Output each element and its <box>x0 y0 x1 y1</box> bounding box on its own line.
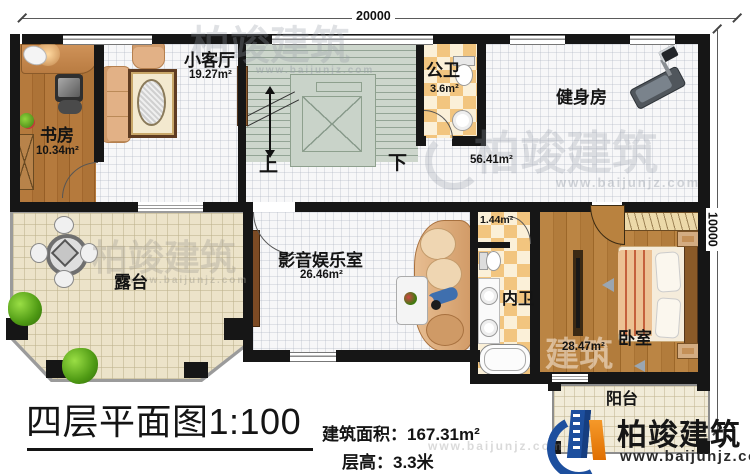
terrace-railing <box>10 210 250 382</box>
stairs-up-label: 上 <box>259 156 278 175</box>
dimension-right-label: 10000 <box>706 208 719 251</box>
wall <box>452 136 486 146</box>
stair-direction-arrow <box>269 92 271 154</box>
office-chair <box>58 100 82 114</box>
toilet-bowl <box>486 251 501 271</box>
room-label-media: 影音娱乐室 <box>278 252 363 269</box>
wall <box>243 350 290 362</box>
stairs <box>290 44 374 74</box>
elevator-shaft-panel <box>316 82 362 92</box>
rug-medallion <box>137 79 166 126</box>
room-label-living: 小客厅 <box>184 52 235 69</box>
wall <box>295 202 592 212</box>
sliding-door <box>552 374 588 382</box>
room-area-bedroom: 28.47m² <box>562 342 605 354</box>
outdoor-chair <box>54 270 74 288</box>
sliding-door <box>138 203 203 211</box>
plan-title-underline <box>27 448 313 451</box>
sink <box>480 319 498 337</box>
window <box>290 352 336 362</box>
decor-arrow-icon <box>634 360 645 372</box>
room-area-media: 26.46m² <box>300 270 343 282</box>
floor-terrace <box>13 213 247 379</box>
room-label-bedroom: 卧室 <box>618 330 652 347</box>
window <box>272 35 433 45</box>
person-hair <box>431 300 441 310</box>
nightstand <box>677 343 699 359</box>
room-label-terrace: 露台 <box>114 274 148 291</box>
brand-logo: 柏竣建筑 www.baijunjz.com <box>545 406 750 470</box>
room-label-gym: 健身房 <box>556 89 607 106</box>
headboard <box>684 243 698 345</box>
bed-blanket <box>618 250 652 336</box>
sofa-cushion <box>426 314 464 346</box>
wall <box>10 202 138 212</box>
sink <box>452 110 473 131</box>
room-area-public-bath: 3.6m² <box>430 84 459 95</box>
elevator-shaft-cross <box>302 96 362 152</box>
stairs <box>374 44 418 158</box>
wall <box>478 242 510 248</box>
sofa-cushion <box>420 228 456 260</box>
planter <box>224 318 246 340</box>
room-area-gym: 56.41m² <box>470 155 513 167</box>
dimension-top-label: 20000 <box>352 10 395 23</box>
sofa-cushion <box>426 258 462 290</box>
outdoor-chair <box>30 243 48 263</box>
wardrobe <box>623 212 700 231</box>
nightstand <box>677 231 699 247</box>
wall <box>336 350 480 362</box>
pillow <box>655 297 682 339</box>
wall <box>470 212 478 384</box>
wall <box>10 34 20 212</box>
decor-arrow-icon <box>602 278 614 292</box>
wall <box>477 44 486 146</box>
planter <box>184 362 208 378</box>
potted-plant <box>19 113 34 128</box>
brand-logo-icon <box>545 406 615 468</box>
spec-floor-height: 层高：3.3米 <box>342 448 434 473</box>
sofa <box>101 66 131 143</box>
spec-building-area: 建筑面积：167.31m² <box>322 420 480 445</box>
flower-vase <box>404 292 417 305</box>
monitor-screen <box>58 78 80 97</box>
wall <box>238 44 246 202</box>
stairs-down-label: 下 <box>388 154 407 173</box>
pillow <box>655 251 682 293</box>
room-area-study: 10.34m² <box>36 146 79 158</box>
bush <box>8 292 42 326</box>
armchair <box>132 41 165 69</box>
bathtub-inner <box>484 348 526 371</box>
tv-panel-screen <box>576 258 580 328</box>
room-area-living: 19.27m² <box>189 70 232 82</box>
wall <box>416 44 424 146</box>
wall <box>470 374 540 384</box>
plan-title: 四层平面图1:100 <box>26 402 301 442</box>
window <box>63 35 152 45</box>
window <box>630 35 675 45</box>
wall <box>94 44 104 162</box>
outdoor-chair <box>54 216 74 234</box>
arrow-up-icon <box>265 86 275 94</box>
outdoor-chair <box>80 243 98 263</box>
window <box>510 35 565 45</box>
room-label-public-bath: 公卫 <box>426 62 460 79</box>
room-label-study: 书房 <box>40 127 74 144</box>
floor-plan-canvas: 柏竣建筑 www.baijunjz.com 柏竣建筑 www.baijunjz.… <box>0 0 750 474</box>
logo-tower-windows-icon <box>573 414 580 454</box>
brand-website: www.baijunjz.com <box>620 448 750 465</box>
sink <box>480 287 498 305</box>
room-area-closet: 1.44m² <box>480 215 513 226</box>
room-label-inner-bath: 内卫 <box>502 292 534 308</box>
wall <box>622 202 710 212</box>
